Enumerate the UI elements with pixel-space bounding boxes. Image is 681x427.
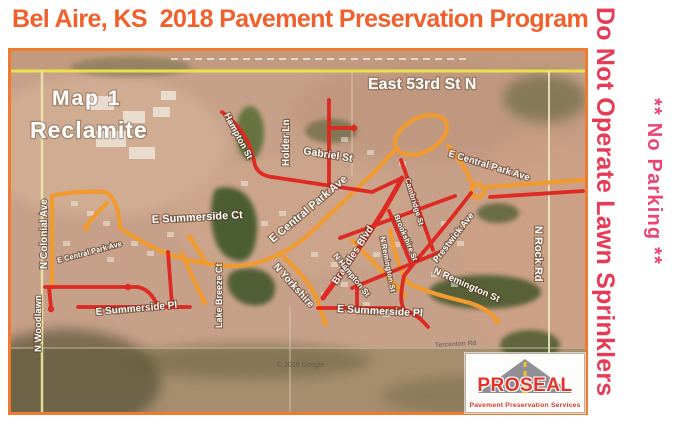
proseal-logo: PROSEAL Pavement Preservation Services (465, 353, 585, 413)
treatment-label: Reclamite (30, 117, 148, 143)
street-label-lake-breeze: Lake Breeze Ct (214, 263, 224, 328)
page-title: Bel Aire, KS 2018 Pavement Preservation … (12, 5, 587, 34)
warning-sprinklers: Do Not Operate Lawn Sprinklers (592, 7, 617, 419)
street-label-east-53rd: East 53rd St N (368, 76, 476, 93)
map-number-label: Map 1 (52, 87, 122, 110)
flyer-page: { "title": "Bel Aire, KS 2018 Pavement P… (0, 0, 681, 427)
google-watermark: © 2018 Google (277, 361, 324, 369)
roundabout (472, 185, 485, 198)
map-frame: East 53rd St N Hampton St Holder Ln Gabr… (8, 48, 588, 415)
proseal-brand: PROSEAL (466, 375, 584, 397)
street-label-rock-rd: N Rock Rd (532, 226, 544, 282)
street-label-colonial: N Colonial Ave (39, 199, 50, 269)
proseal-tagline: Pavement Preservation Services (466, 402, 584, 409)
street-label-holder: Holder Ln (281, 119, 292, 166)
street-label-woodlawn: N Woodlawn (33, 295, 44, 352)
warning-no-parking: ** No Parking ** (644, 98, 664, 336)
